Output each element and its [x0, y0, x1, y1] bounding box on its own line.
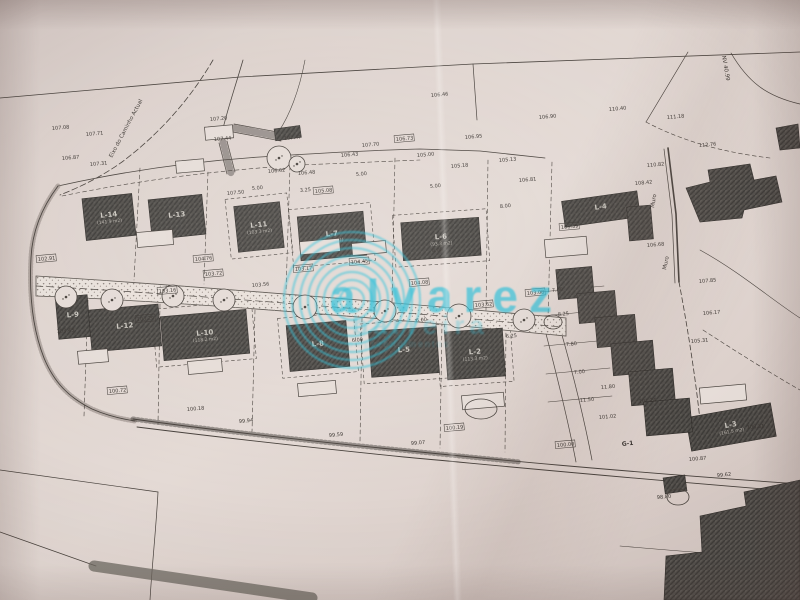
garage-label: G-1 — [621, 440, 633, 448]
building-l-14: L-14(141.9 m2) — [82, 194, 136, 241]
watermark-line2: barreira — [352, 310, 489, 340]
lot-label: L-2 — [468, 348, 481, 357]
terrace-unit — [627, 205, 654, 241]
small-structure — [663, 475, 687, 494]
spot-elevation: 98.80 — [657, 494, 672, 501]
dimension-label: 7.00 — [574, 369, 586, 376]
tree-icon — [101, 289, 123, 311]
building-l-12: L-12 — [88, 304, 161, 352]
dimension-label: 7.80 — [566, 341, 578, 348]
annex-outline — [77, 349, 108, 365]
annex-outline — [187, 359, 222, 375]
svg-text:99.62: 99.62 — [717, 472, 732, 479]
spot-elevation: 99.62 — [717, 472, 732, 479]
site-plan-drawing: L-14(141.9 m2)L-13L-11(103.3 m2)L-7(93.9… — [0, 0, 800, 600]
building-l-10: L-10(118.2 m2) — [160, 309, 250, 360]
building-l-11: L-11(103.3 m2) — [234, 202, 285, 253]
dimension-label: 8.00 — [432, 247, 444, 254]
site-plan-photo: L-14(141.9 m2)L-13L-11(103.3 m2)L-7(93.9… — [0, 0, 800, 600]
spot-elevation: 99.94 — [239, 418, 254, 425]
tree-icon — [213, 289, 235, 311]
dimension-label: 5.00 — [430, 183, 442, 190]
dimension-label: 5.00 — [252, 185, 264, 192]
dimension-label: 3.25 — [300, 187, 312, 194]
svg-text:99.59: 99.59 — [329, 432, 344, 439]
watermark-line3: empreendimentos — [348, 339, 450, 349]
lot-label: L-4 — [594, 202, 607, 212]
dimension-label: 8.00 — [500, 203, 512, 210]
tree-icon — [55, 286, 77, 308]
tree-icon — [267, 146, 291, 170]
building-l-6: L-6(93.3 m2) — [401, 217, 481, 260]
spot-elevation: 99.59 — [329, 432, 344, 439]
dimension-label: 6.25 — [506, 333, 518, 340]
annex-outline — [136, 229, 173, 247]
annex-outline — [544, 236, 587, 258]
lot-label: L-9 — [66, 310, 79, 319]
svg-text:99.07: 99.07 — [411, 440, 426, 447]
svg-text:98.80: 98.80 — [657, 494, 672, 501]
spot-elevation: 99.07 — [411, 440, 426, 447]
svg-text:99.94: 99.94 — [239, 418, 254, 425]
tree-icon — [293, 295, 317, 319]
dimension-label: 5.00 — [356, 171, 368, 178]
annex-outline — [176, 159, 205, 173]
lot-label: L-10 — [196, 328, 214, 337]
lot-label: L-12 — [116, 321, 134, 330]
dimension-label: 11.50 — [580, 397, 595, 404]
existing-building — [776, 124, 800, 150]
dimension-label: 11.80 — [601, 384, 616, 391]
lot-label: L-6 — [434, 233, 447, 242]
